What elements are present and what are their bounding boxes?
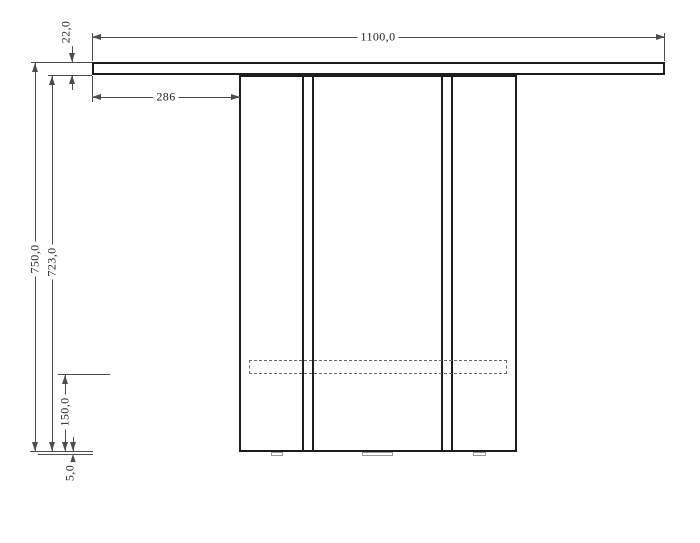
arrowhead-icon: [62, 442, 68, 451]
arrowhead-icon: [231, 94, 240, 100]
ext-line-pedestal-bottom: [30, 451, 93, 452]
dim-label-overall-height: 750,0: [29, 242, 42, 277]
arrowhead-icon: [32, 442, 38, 451]
panel-divider-left-a: [302, 76, 304, 451]
arrowhead-icon: [32, 63, 38, 72]
panel-divider-right-b: [451, 76, 453, 451]
tabletop: [92, 62, 665, 75]
dim-label-overhang: 286: [153, 91, 178, 104]
arrowhead-icon: [656, 34, 665, 40]
arrowhead-icon: [62, 375, 68, 384]
panel-divider-right-a: [441, 76, 443, 451]
dim-label-body-height: 723,0: [46, 245, 59, 280]
arrowhead-icon: [70, 442, 76, 451]
arrowhead-icon: [49, 76, 55, 85]
ext-line-floor: [38, 454, 93, 455]
arrowhead-icon: [92, 34, 101, 40]
dim-label-top-thickness: 22,0: [60, 18, 73, 47]
pedestal-body: [239, 75, 517, 452]
arrowhead-icon: [92, 94, 101, 100]
dim-label-stretcher-offset: 150,0: [59, 395, 72, 430]
arrowhead-icon: [69, 53, 75, 62]
glide-left: [271, 452, 283, 456]
ext-line-tabletop-top: [31, 62, 92, 63]
arrowhead-icon: [49, 442, 55, 451]
hidden-stretcher: [249, 360, 507, 374]
dim-label-top-width: 1100,0: [358, 31, 399, 44]
glide-center: [362, 452, 393, 456]
panel-divider-left-b: [312, 76, 314, 451]
glide-right: [473, 452, 486, 456]
technical-drawing-canvas: 1100,0 22,0 286 750,0 723,0 150,0 5,0: [0, 0, 700, 543]
dim-label-glide-height: 5,0: [64, 462, 77, 484]
arrowhead-icon: [69, 75, 75, 84]
